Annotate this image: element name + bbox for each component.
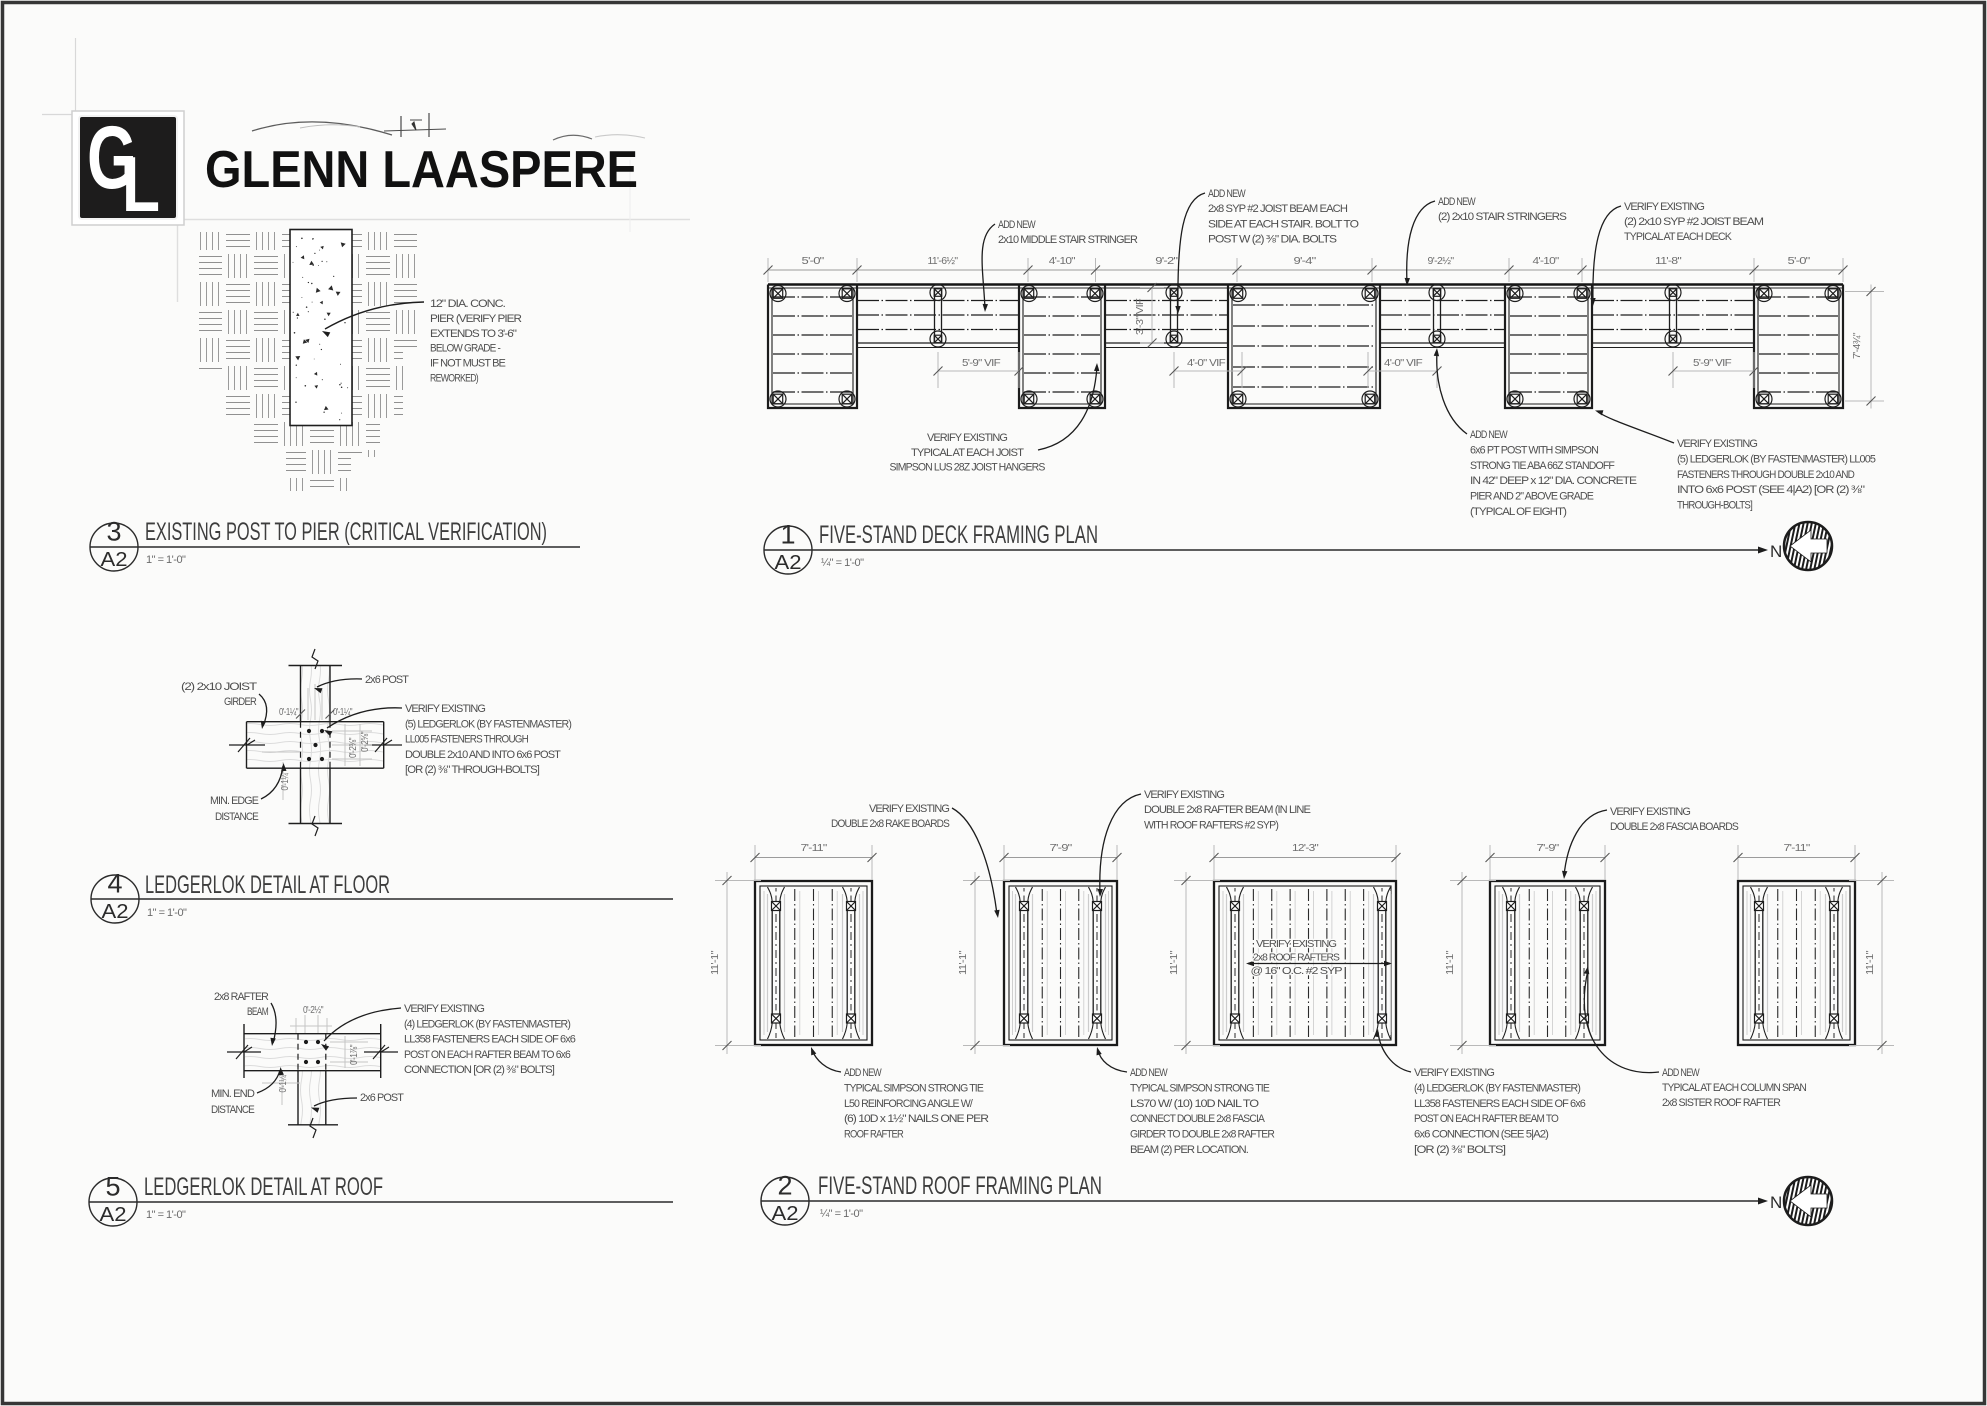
svg-text:(5) LEDGERLOK (BY FASTENMASTER: (5) LEDGERLOK (BY FASTENMASTER) LL005 <box>1677 453 1876 465</box>
svg-text:2x8 ROOF RAFTERS: 2x8 ROOF RAFTERS <box>1253 952 1340 964</box>
svg-text:BEAM: BEAM <box>247 1006 269 1018</box>
svg-text:GIRDER: GIRDER <box>224 696 257 708</box>
svg-text:2x6 POST: 2x6 POST <box>365 674 409 686</box>
svg-text:11'-6½": 11'-6½" <box>928 256 959 267</box>
svg-text:2x8 SISTER ROOF RAFTER: 2x8 SISTER ROOF RAFTER <box>1662 1097 1781 1109</box>
svg-text:GIRDER TO DOUBLE 2x8 RAFTER: GIRDER TO DOUBLE 2x8 RAFTER <box>1130 1129 1275 1141</box>
svg-text:4'-10": 4'-10" <box>1533 256 1560 267</box>
svg-text:1: 1 <box>780 520 795 550</box>
svg-text:11'-1": 11'-1" <box>710 950 721 975</box>
svg-text:(5) LEDGERLOK (BY FASTENMASTER: (5) LEDGERLOK (BY FASTENMASTER) <box>405 718 571 730</box>
svg-text:¼" = 1'-0": ¼" = 1'-0" <box>820 1208 863 1220</box>
svg-text:A2: A2 <box>102 901 129 923</box>
svg-text:DOUBLE 2x10 AND INTO 6x6 POST: DOUBLE 2x10 AND INTO 6x6 POST <box>405 749 561 761</box>
svg-text:[OR (2) ⅜" BOLTS]: [OR (2) ⅜" BOLTS] <box>1414 1144 1506 1156</box>
svg-text:EXISTING POST TO PIER (CRITIC: EXISTING POST TO PIER (CRITICAL VERIFICA… <box>145 518 547 546</box>
svg-text:ADD NEW: ADD NEW <box>1130 1067 1168 1079</box>
svg-text:N: N <box>1770 1193 1782 1212</box>
svg-text:5'-9" VIF: 5'-9" VIF <box>962 358 1001 369</box>
svg-text:9'-4": 9'-4" <box>1294 256 1317 267</box>
svg-text:VERIFY EXISTING: VERIFY EXISTING <box>405 703 485 715</box>
svg-text:EXTENDS TO 3'-6": EXTENDS TO 3'-6" <box>430 328 517 340</box>
svg-text:0'-1⅞": 0'-1⅞" <box>349 1044 360 1065</box>
svg-text:VERIFY EXISTING: VERIFY EXISTING <box>1677 438 1757 450</box>
svg-text:7'-9": 7'-9" <box>1050 843 1073 854</box>
svg-text:DOUBLE 2x8 RAFTER BEAM (IN LIN: DOUBLE 2x8 RAFTER BEAM (IN LINE <box>1144 804 1311 816</box>
svg-text:MIN. EDGE: MIN. EDGE <box>210 795 259 807</box>
svg-text:A2: A2 <box>100 1204 127 1226</box>
svg-text:VERIFY EXISTING: VERIFY EXISTING <box>1256 938 1337 950</box>
svg-text:VERIFY EXISTING: VERIFY EXISTING <box>404 1003 484 1015</box>
svg-text:CONNECT DOUBLE 2x8 FASCIA: CONNECT DOUBLE 2x8 FASCIA <box>1130 1113 1265 1125</box>
svg-text:VERIFY EXISTING: VERIFY EXISTING <box>1144 789 1224 801</box>
svg-text:THROUGH-BOLTS]: THROUGH-BOLTS] <box>1677 500 1753 512</box>
svg-text:MIN. END: MIN. END <box>211 1088 255 1100</box>
svg-text:9'-2": 9'-2" <box>1155 256 1178 267</box>
svg-text:TYPICAL AT EACH COLUMN SPAN: TYPICAL AT EACH COLUMN SPAN <box>1662 1082 1807 1094</box>
svg-text:CONNECTION [OR (2) ⅜" BOLTS]: CONNECTION [OR (2) ⅜" BOLTS] <box>404 1064 555 1076</box>
svg-text:3: 3 <box>106 517 121 547</box>
svg-text:0'-2⅝": 0'-2⅝" <box>360 731 371 752</box>
svg-text:(4) LEDGERLOK (BY FASTENMASTER: (4) LEDGERLOK (BY FASTENMASTER) <box>404 1018 570 1030</box>
svg-text:11'-1": 11'-1" <box>958 950 969 975</box>
svg-text:(4) LEDGERLOK (BY FASTENMASTER: (4) LEDGERLOK (BY FASTENMASTER) <box>1414 1082 1580 1094</box>
svg-text:ADD NEW: ADD NEW <box>1208 188 1246 200</box>
svg-text:1" = 1'-0": 1" = 1'-0" <box>146 1209 186 1221</box>
svg-text:11'-1": 11'-1" <box>1445 950 1456 975</box>
svg-text:11'-1": 11'-1" <box>1865 950 1876 975</box>
svg-text:A2: A2 <box>101 549 128 571</box>
svg-text:DOUBLE 2x8 FASCIA BOARDS: DOUBLE 2x8 FASCIA BOARDS <box>1610 821 1739 833</box>
svg-text:IF NOT MUST BE: IF NOT MUST BE <box>430 358 506 370</box>
svg-text:2x8 SYP #2 JOIST BEAM EACH: 2x8 SYP #2 JOIST BEAM EACH <box>1208 203 1348 215</box>
svg-text:0'-2⅜": 0'-2⅜" <box>348 737 359 758</box>
svg-text:TYPICAL AT EACH JOIST: TYPICAL AT EACH JOIST <box>911 447 1024 459</box>
svg-text:4'-10": 4'-10" <box>1049 256 1076 267</box>
svg-text:11'-8": 11'-8" <box>1655 256 1682 267</box>
svg-text:2: 2 <box>777 1171 792 1201</box>
svg-text:VERIFY EXISTING: VERIFY EXISTING <box>927 432 1007 444</box>
svg-text:6x6 PT POST WITH SIMPSON: 6x6 PT POST WITH SIMPSON <box>1470 444 1599 456</box>
svg-text:ADD NEW: ADD NEW <box>1438 196 1476 208</box>
svg-text:(2) 2x10 SYP #2 JOIST BEAM: (2) 2x10 SYP #2 JOIST BEAM <box>1624 216 1764 228</box>
svg-text:PIER AND 2" ABOVE GRADE: PIER AND 2" ABOVE GRADE <box>1470 491 1594 503</box>
svg-text:STRONG TIE ABA 66Z STANDOFF: STRONG TIE ABA 66Z STANDOFF <box>1470 460 1615 472</box>
svg-text:ADD NEW: ADD NEW <box>844 1067 882 1079</box>
svg-text:WITH ROOF RAFTERS #2 SYP): WITH ROOF RAFTERS #2 SYP) <box>1144 819 1278 831</box>
svg-text:L: L <box>122 140 160 228</box>
svg-text:2x8 RAFTER: 2x8 RAFTER <box>214 991 269 1003</box>
svg-text:(TYPICAL OF EIGHT): (TYPICAL OF EIGHT) <box>1470 506 1566 518</box>
svg-text:LEDGERLOK DETAIL AT FLOOR: LEDGERLOK DETAIL AT FLOOR <box>145 871 390 899</box>
svg-text:ADD NEW: ADD NEW <box>1662 1067 1700 1079</box>
svg-text:[OR (2) ⅜" THROUGH-BOLTS]: [OR (2) ⅜" THROUGH-BOLTS] <box>405 764 540 776</box>
svg-text:(2) 2x10 STAIR STRINGERS: (2) 2x10 STAIR STRINGERS <box>1438 211 1567 223</box>
svg-text:ADD NEW: ADD NEW <box>998 219 1036 231</box>
svg-text:POST W (2) ⅜" DIA. BOLTS: POST W (2) ⅜" DIA. BOLTS <box>1208 234 1337 246</box>
svg-text:ADD NEW: ADD NEW <box>1470 429 1508 441</box>
svg-text:7'-9": 7'-9" <box>1537 843 1560 854</box>
svg-text:1" = 1'-0": 1" = 1'-0" <box>147 907 187 919</box>
svg-text:5'-0": 5'-0" <box>802 256 825 267</box>
svg-text:9'-2½": 9'-2½" <box>1428 256 1455 267</box>
svg-text:4'-0" VIF: 4'-0" VIF <box>1384 358 1423 369</box>
svg-text:4: 4 <box>107 869 122 899</box>
svg-text:LS70 W/ (10) 10D NAIL TO: LS70 W/ (10) 10D NAIL TO <box>1130 1098 1260 1110</box>
svg-text:LL005 FASTENERS THROUGH: LL005 FASTENERS THROUGH <box>405 734 529 746</box>
svg-text:12'-3": 12'-3" <box>1292 843 1319 854</box>
svg-text:TYPICAL SIMPSON STRONG TIE: TYPICAL SIMPSON STRONG TIE <box>844 1082 984 1094</box>
svg-text:3'-3" VIF: 3'-3" VIF <box>1135 298 1146 335</box>
svg-text:VERIFY EXISTING: VERIFY EXISTING <box>869 803 949 815</box>
svg-text:LL358 FASTENERS EACH SIDE OF 6: LL358 FASTENERS EACH SIDE OF 6x6 <box>404 1034 576 1046</box>
svg-text:VERIFY EXISTING: VERIFY EXISTING <box>1624 201 1704 213</box>
svg-text:0'-1¼": 0'-1¼" <box>279 771 291 791</box>
svg-text:BEAM (2) PER LOCATION.: BEAM (2) PER LOCATION. <box>1130 1144 1249 1156</box>
svg-text:0'-1¼": 0'-1¼" <box>279 706 299 718</box>
svg-text:LL358 FASTENERS EACH SIDE OF 6: LL358 FASTENERS EACH SIDE OF 6x6 <box>1414 1098 1586 1110</box>
svg-text:4'-0" VIF: 4'-0" VIF <box>1187 358 1226 369</box>
svg-text:LEDGERLOK DETAIL AT ROOF: LEDGERLOK DETAIL AT ROOF <box>144 1173 383 1201</box>
svg-text:0'-1¼": 0'-1¼" <box>277 1073 289 1093</box>
svg-text:¼" = 1'-0": ¼" = 1'-0" <box>821 557 864 569</box>
svg-text:(2) 2x10 JOIST: (2) 2x10 JOIST <box>181 681 257 693</box>
svg-text:DISTANCE: DISTANCE <box>215 811 259 823</box>
svg-text:BELOW GRADE -: BELOW GRADE - <box>430 343 501 355</box>
svg-text:IN 42" DEEP x 12" DIA. CONCRET: IN 42" DEEP x 12" DIA. CONCRETE <box>1470 475 1637 487</box>
svg-text:GLENN LAASPERE: GLENN LAASPERE <box>205 141 638 199</box>
svg-text:2x10 MIDDLE STAIR STRINGER: 2x10 MIDDLE STAIR STRINGER <box>998 234 1138 246</box>
svg-text:A2: A2 <box>775 552 802 574</box>
svg-text:A2: A2 <box>772 1203 799 1225</box>
svg-text:DISTANCE: DISTANCE <box>211 1104 255 1116</box>
svg-text:12" DIA. CONC.: 12" DIA. CONC. <box>430 298 506 310</box>
svg-text:0'-2½": 0'-2½" <box>303 1005 324 1016</box>
svg-text:2x6 POST: 2x6 POST <box>360 1092 404 1104</box>
svg-text:FASTENERS THROUGH DOUBLE 2x10: FASTENERS THROUGH DOUBLE 2x10 AND <box>1677 469 1855 481</box>
svg-text:TYPICAL AT EACH DECK: TYPICAL AT EACH DECK <box>1624 231 1733 243</box>
svg-text:ROOF RAFTER: ROOF RAFTER <box>844 1129 904 1141</box>
svg-text:VERIFY EXISTING: VERIFY EXISTING <box>1414 1067 1494 1079</box>
svg-text:TYPICAL SIMPSON STRONG TIE: TYPICAL SIMPSON STRONG TIE <box>1130 1082 1270 1094</box>
svg-text:FIVE-STAND DECK FRAMING PLAN: FIVE-STAND DECK FRAMING PLAN <box>819 521 1098 549</box>
svg-text:N: N <box>1770 542 1782 561</box>
svg-text:REWORKED): REWORKED) <box>430 373 478 385</box>
svg-text:7'-11": 7'-11" <box>801 843 828 854</box>
svg-text:FIVE-STAND ROOF FRAMING PLAN: FIVE-STAND ROOF FRAMING PLAN <box>818 1172 1102 1200</box>
svg-text:DOUBLE 2x8 RAKE BOARDS: DOUBLE 2x8 RAKE BOARDS <box>831 818 950 830</box>
svg-text:L50 REINFORCING ANGLE W/: L50 REINFORCING ANGLE W/ <box>844 1098 974 1110</box>
svg-text:(6) 10D x 1½" NAILS ONE PER: (6) 10D x 1½" NAILS ONE PER <box>844 1113 989 1125</box>
svg-text:5'-9" VIF: 5'-9" VIF <box>1693 358 1732 369</box>
svg-text:INTO 6x6 POST (SEE 4|A2) [OR (: INTO 6x6 POST (SEE 4|A2) [OR (2) ⅜" <box>1677 484 1865 496</box>
svg-text:POST ON EACH RAFTER BEAM TO: POST ON EACH RAFTER BEAM TO <box>1414 1113 1559 1125</box>
svg-text:5'-0": 5'-0" <box>1788 256 1811 267</box>
svg-text:6x6 CONNECTION (SEE 5|A2): 6x6 CONNECTION (SEE 5|A2) <box>1414 1129 1548 1141</box>
svg-text:7'-4¾": 7'-4¾" <box>1852 332 1863 359</box>
svg-text:@ 16" O.C. #2 SYP: @ 16" O.C. #2 SYP <box>1251 965 1343 977</box>
svg-text:5: 5 <box>105 1172 120 1202</box>
svg-text:11'-1": 11'-1" <box>1169 950 1180 975</box>
svg-text:VERIFY EXISTING: VERIFY EXISTING <box>1610 806 1690 818</box>
svg-text:POST ON EACH RAFTER BEAM TO 6x: POST ON EACH RAFTER BEAM TO 6x6 <box>404 1049 571 1061</box>
svg-text:7'-11": 7'-11" <box>1784 843 1811 854</box>
svg-text:SIMPSON LUS 28Z JOIST HANGERS: SIMPSON LUS 28Z JOIST HANGERS <box>890 462 1046 474</box>
svg-text:PIER (VERIFY PIER: PIER (VERIFY PIER <box>430 313 522 325</box>
svg-text:1" = 1'-0": 1" = 1'-0" <box>146 554 186 566</box>
svg-text:SIDE AT EACH STAIR. BOLT TO: SIDE AT EACH STAIR. BOLT TO <box>1208 218 1359 230</box>
